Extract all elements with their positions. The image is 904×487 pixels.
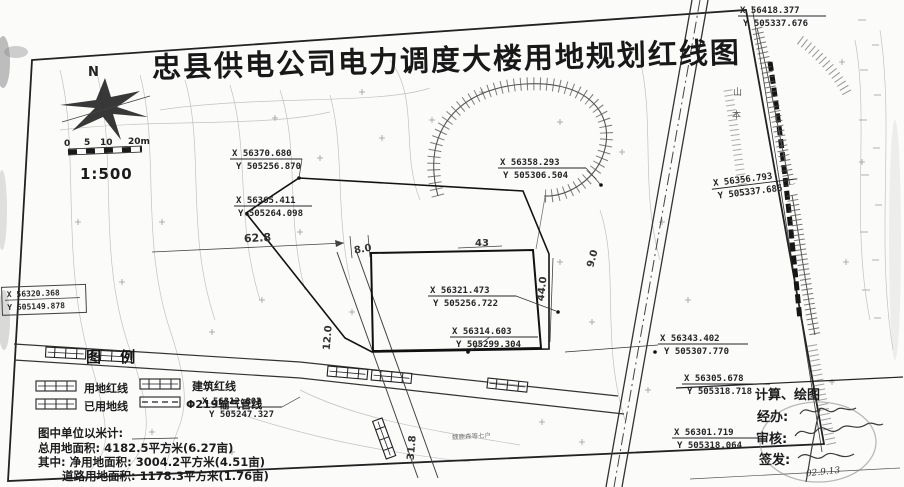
map-canvas: X 56370.680 Y 505256.870 X 56365.411 Y 5…	[0, 0, 904, 487]
coord-x-5: X 56314.603	[452, 327, 512, 337]
legend-label-building-redline: 建筑红线	[192, 379, 236, 393]
legend-swatch-used-land	[36, 399, 76, 409]
coord-x-9: X 56305.678	[684, 374, 744, 384]
dim-43: 43	[475, 238, 489, 249]
stats-unit-note: 图中单位以米计:	[38, 426, 123, 440]
legend-swatch-land-redline	[36, 381, 76, 391]
coord-y-6: Y 505337.676	[743, 19, 808, 29]
dim-62-8: 62.8	[244, 231, 272, 245]
dim-31-8: 31.8	[406, 435, 419, 461]
stats-total-area: 总用地面积: 4182.5平方米(6.27亩)	[38, 441, 233, 455]
coord-y-5: Y 505299.304	[456, 340, 522, 350]
legend-header: 图 例	[86, 348, 142, 366]
legend-label-land-redline: 用地红线	[84, 381, 128, 395]
coord-y-8: Y 505307.770	[664, 347, 729, 357]
scale-tick-20m: 20m	[128, 137, 150, 147]
coord-y-2: Y 505264.098	[238, 209, 303, 219]
road-label-hill2: 本	[732, 109, 741, 121]
coord-y-3: Y 505306.504	[503, 171, 569, 181]
stats-road-area: 道路用地面积: 1178.3平方米(1.76亩)	[62, 469, 269, 483]
coord-y-9: Y 505318.718	[687, 387, 752, 397]
stats-net-area: 其中: 净用地面积: 3004.2平方米(4.51亩)	[38, 455, 265, 469]
coord-y-11: Y 505247.327	[209, 410, 274, 420]
scale-tick-10: 10	[100, 138, 113, 148]
legend-swatch-gas-pipeline	[140, 397, 180, 407]
coord-x-1: X 56370.680	[232, 149, 292, 159]
coord-y-4: Y 505256.722	[433, 299, 498, 309]
road-label-hill1: 山	[733, 87, 742, 98]
coord-x-2: X 56365.411	[236, 196, 296, 206]
coord-x-3: X 56358.293	[500, 158, 560, 168]
dim-12-0: 12.0	[322, 325, 335, 351]
north-label: N	[88, 65, 99, 80]
scale-tick-0: 0	[64, 139, 70, 149]
scale-tick-5: 5	[84, 138, 90, 148]
signoff-calc-draw: 计算、绘图	[755, 387, 820, 403]
coord-x-6: X 56418.377	[740, 6, 800, 16]
coord-x-4: X 56321.473	[430, 286, 490, 296]
coord-y-10: Y 505318.064	[677, 441, 743, 451]
coord-x-10: X 56301.719	[674, 428, 734, 438]
coord-x-12: X 56320.368	[7, 288, 60, 299]
scanned-planning-map: X 56370.680 Y 505256.870 X 56365.411 Y 5…	[0, 0, 904, 487]
legend-swatch-building-redline	[140, 379, 180, 389]
scale-ratio: 1:500	[80, 165, 133, 183]
coord-y-1: Y 505256.870	[236, 162, 301, 172]
coord-x-8: X 56343.402	[660, 334, 720, 344]
legend-label-used-land: 已用地线	[84, 399, 128, 413]
legend-label-gas-pipeline: Φ219输气管线	[186, 397, 262, 411]
